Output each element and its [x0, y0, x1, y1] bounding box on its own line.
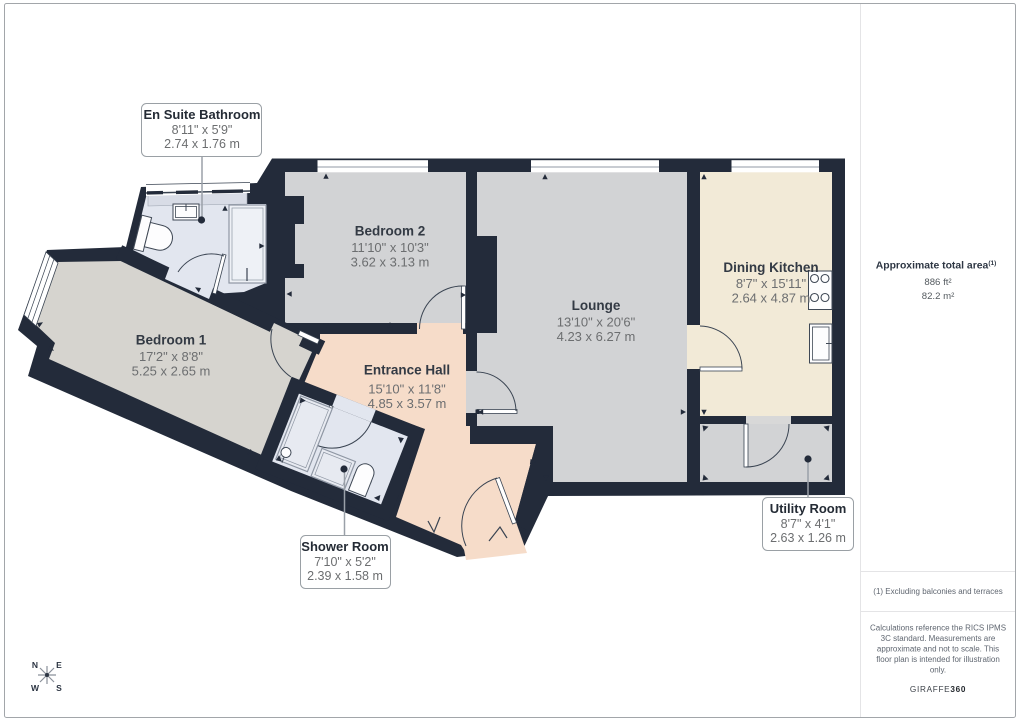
svg-text:886 ft²: 886 ft² — [924, 277, 952, 288]
svg-text:3.62 x 3.13 m: 3.62 x 3.13 m — [351, 255, 430, 270]
svg-text:2.39 x 1.58 m: 2.39 x 1.58 m — [307, 569, 383, 583]
svg-text:2.74 x 1.76 m: 2.74 x 1.76 m — [164, 137, 240, 151]
svg-text:11'10" x 10'3": 11'10" x 10'3" — [351, 240, 429, 255]
svg-text:82.2 m²: 82.2 m² — [922, 291, 955, 302]
svg-text:Calculations reference the RIC: Calculations reference the RICS IPMS — [870, 624, 1006, 633]
svg-text:Shower Room: Shower Room — [301, 539, 388, 554]
svg-text:Bedroom 2: Bedroom 2 — [355, 224, 426, 239]
svg-text:N: N — [32, 660, 38, 670]
svg-text:W: W — [31, 683, 40, 693]
svg-text:Dining Kitchen: Dining Kitchen — [723, 260, 818, 275]
svg-text:4.85 x 3.57 m: 4.85 x 3.57 m — [368, 396, 447, 411]
svg-text:only.: only. — [930, 666, 946, 675]
svg-text:E: E — [56, 660, 62, 670]
svg-text:17'2" x 8'8": 17'2" x 8'8" — [139, 349, 203, 364]
svg-text:floor plan is intended for ill: floor plan is intended for illustration — [876, 655, 1000, 664]
svg-text:S: S — [56, 683, 62, 693]
svg-text:(1) Excluding balconies and te: (1) Excluding balconies and terraces — [873, 587, 1002, 596]
svg-text:2.63 x 1.26 m: 2.63 x 1.26 m — [770, 531, 846, 545]
svg-text:5.25 x 2.65 m: 5.25 x 2.65 m — [132, 364, 211, 379]
svg-text:Approximate total area(1): Approximate total area(1) — [876, 260, 997, 272]
svg-text:15'10" x 11'8": 15'10" x 11'8" — [368, 382, 446, 397]
svg-text:Utility Room: Utility Room — [770, 501, 847, 516]
svg-text:3C standard. Measurements are: 3C standard. Measurements are — [881, 634, 996, 643]
svg-text:8'11" x 5'9": 8'11" x 5'9" — [172, 123, 233, 137]
svg-text:8'7" x 15'11": 8'7" x 15'11" — [736, 276, 807, 291]
svg-text:13'10" x 20'6": 13'10" x 20'6" — [557, 315, 636, 330]
svg-text:Entrance Hall: Entrance Hall — [364, 363, 450, 378]
svg-text:approximate and not to scale.: approximate and not to scale. This — [877, 645, 999, 654]
svg-text:4.23 x 6.27 m: 4.23 x 6.27 m — [557, 329, 636, 344]
svg-text:Lounge: Lounge — [572, 298, 621, 313]
svg-text:Bedroom 1: Bedroom 1 — [136, 333, 207, 348]
svg-text:2.64 x 4.87 m: 2.64 x 4.87 m — [732, 291, 811, 306]
svg-text:7'10" x 5'2": 7'10" x 5'2" — [314, 555, 376, 569]
svg-text:8'7" x 4'1": 8'7" x 4'1" — [781, 517, 836, 531]
svg-text:En Suite Bathroom: En Suite Bathroom — [143, 107, 260, 122]
svg-text:GIRAFFE360: GIRAFFE360 — [910, 685, 966, 694]
